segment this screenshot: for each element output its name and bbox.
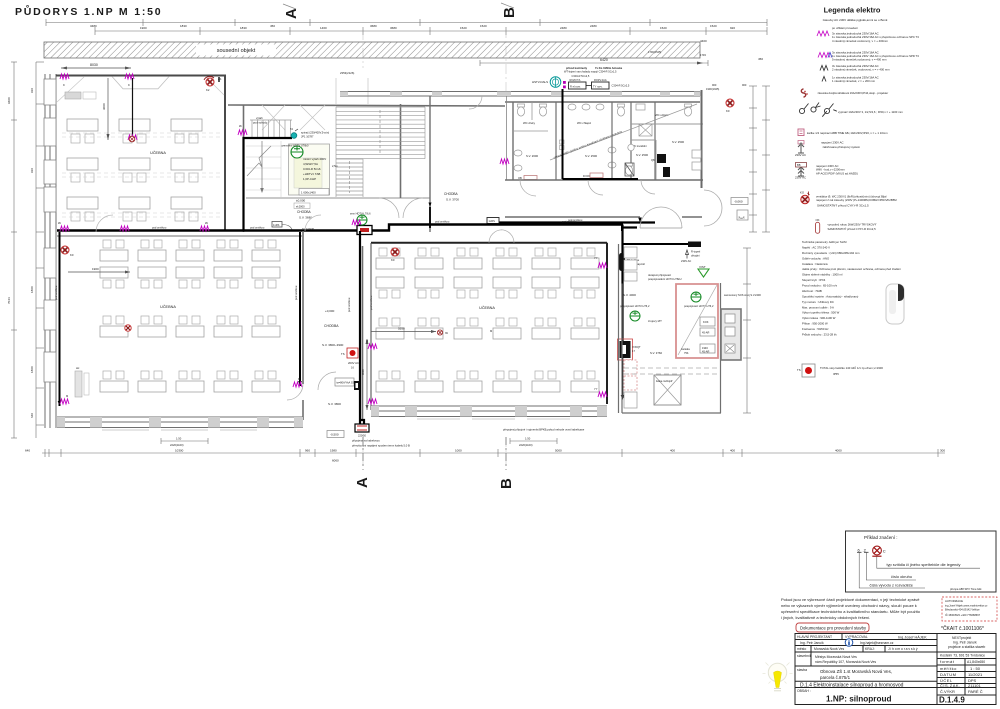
svg-text:sousední objekt: sousední objekt: [217, 48, 256, 54]
svg-text:960: 960: [305, 449, 310, 453]
svg-text:1520: 1520: [460, 26, 467, 30]
svg-text:pod omítkou: pod omítkou: [152, 226, 167, 230]
svg-text:Výkon tělesa : 900-1100 W: Výkon tělesa : 900-1100 W: [802, 316, 836, 320]
svg-text:75b: 75b: [684, 351, 689, 355]
svg-text:1 násobný rámeček, v = + 200 m: 1 násobný rámeček, v = + 200 mm: [832, 79, 876, 83]
svg-text:UČEBNA: UČEBNA: [160, 304, 176, 309]
svg-text:BB: BB: [797, 163, 801, 167]
svg-text:1830: 1830: [240, 26, 247, 30]
svg-text:1900: 1900: [140, 26, 147, 30]
svg-text:211101: 211101: [968, 683, 982, 688]
svg-text:WC chlapci: WC chlapci: [577, 121, 592, 125]
svg-text:okrajové připojovací: okrajové připojovací: [648, 273, 671, 277]
svg-text:Pokud jsou ve výkresové části: Pokud jsou ve výkresové části projektové…: [781, 597, 920, 602]
svg-text:Dokumentace pro provedení sta: Dokumentace pro provedení stavby: [800, 626, 867, 631]
svg-text:ROZV.2AA: ROZV.2AA: [594, 78, 607, 82]
svg-text:A1,840x650: A1,840x650: [967, 660, 985, 664]
svg-text:Technické parametry JetDryer S: Technické parametry JetDryer SLIM: [802, 240, 847, 244]
svg-text:CHODBA: CHODBA: [297, 210, 312, 214]
svg-text:1460: 1460: [320, 26, 327, 30]
svg-text:pod schody: pod schody: [253, 121, 268, 125]
svg-text:R el.rozv.: R el.rozv.: [570, 84, 581, 88]
svg-text:1xRS: 1xRS: [273, 223, 280, 227]
svg-text:+HDTV-I TAB: +HDTV-I TAB: [303, 172, 320, 176]
svg-text:stavebník: stavebník: [797, 654, 812, 658]
svg-text:VIST: VIST: [699, 265, 706, 269]
svg-text:5550: 5550: [398, 327, 405, 331]
svg-text:Ing. Petr Januík: Ing. Petr Januík: [953, 641, 977, 645]
svg-text:Příklad značení :: Příklad značení :: [864, 535, 898, 540]
svg-text:výtah: výtah: [256, 116, 263, 120]
svg-text:1000: 1000: [455, 449, 462, 453]
svg-text:K0: K0: [726, 109, 730, 113]
svg-text:910: 910: [30, 168, 34, 173]
svg-text:45-AR: 45-AR: [702, 350, 709, 354]
svg-text:4400: 4400: [700, 39, 707, 43]
svg-text:parcela č.875/1: parcela č.875/1: [820, 675, 851, 680]
svg-text:zásuvka dvojitá sklolková 16A: zásuvka dvojitá sklolková 16A/230V,IP44,…: [818, 91, 889, 95]
svg-text:Městys Moravská Nová Ves: Městys Moravská Nová Ves: [815, 655, 857, 659]
svg-text:450: 450: [758, 57, 763, 61]
svg-text:220/50: 220/50: [358, 434, 366, 438]
svg-text:Objem sběrné nádržky : 1000 ml: Objem sběrné nádržky : 1000 ml: [802, 273, 843, 277]
svg-text:910: 910: [30, 88, 34, 93]
svg-text:Výkon topného tělesa : 500 W: Výkon topného tělesa : 500 W: [802, 311, 840, 315]
svg-text:S.V. 3800~3900: S.V. 3800~3900: [322, 343, 344, 347]
svg-text:1.NP: silnoproud: 1.NP: silnoproud: [826, 695, 892, 704]
svg-text:6060: 6060: [332, 459, 339, 463]
svg-text:DATUM: DATUM: [940, 672, 956, 677]
svg-text:4 násobný rámeček vodorovný, v: 4 násobný rámeček vodorovný, v = + 400mm: [832, 39, 889, 43]
svg-text:920: 920: [730, 26, 735, 30]
svg-text:7x 2m 1960m Antuska: 7x 2m 1960m Antuska: [595, 66, 623, 70]
svg-text:nebo ve výkazech výměr výjimeč: nebo ve výkazech výměr výjimečně uvedeny…: [781, 603, 917, 608]
svg-text:projekce a statika staveb: projekce a statika staveb: [948, 645, 985, 649]
svg-text:Dn 100/36: Dn 100/36: [302, 227, 315, 231]
svg-text:napojení č.ísk zásuvky (230V ): napojení č.ísk zásuvky (230V )P+1400MM,K…: [816, 198, 897, 202]
svg-text:Moravská Nová Ves: Moravská Nová Ves: [814, 647, 844, 651]
svg-text:Q8: Q8: [651, 158, 655, 162]
svg-text:Odběr vzduchu : ANO: Odběr vzduchu : ANO: [802, 256, 830, 260]
svg-text:formát: formát: [940, 659, 955, 664]
svg-text:DI DK: DI DK: [583, 174, 590, 178]
svg-text:Hlučnost : 70dB: Hlučnost : 70dB: [802, 289, 822, 293]
svg-text:přívod kontinuity: přívod kontinuity: [566, 66, 588, 70]
svg-text:el,0000: el,0000: [296, 205, 305, 209]
svg-text:M: M: [366, 339, 368, 343]
svg-text:C304-R 5Cx6: C304-R 5Cx6: [303, 167, 321, 171]
svg-text:Ing. Petr Januík: Ing. Petr Januík: [800, 641, 824, 645]
svg-text:TY rozv.: TY rozv.: [593, 84, 603, 88]
svg-text:1520: 1520: [710, 24, 717, 28]
svg-text:Instalace : Nastěnná: Instalace : Nastěnná: [802, 262, 828, 266]
svg-text:1800: 1800: [30, 286, 34, 293]
svg-text:B: B: [501, 7, 518, 18]
svg-text:měřítko: měřítko: [940, 666, 957, 671]
svg-text:Max. provozní odběr : 9 A: Max. provozní odběr : 9 A: [802, 305, 834, 309]
svg-text:TS: TS: [797, 368, 801, 372]
svg-text:230V AC: 230V AC: [795, 153, 806, 157]
svg-text:230V AC: 230V AC: [795, 176, 806, 180]
svg-text:poepojovací HO7V-U76,2: poepojovací HO7V-U76,2: [684, 304, 714, 308]
svg-text:1700(1545): 1700(1545): [648, 50, 661, 54]
svg-text:nám.Republiky 107, Moravská No: nám.Republiky 107, Moravská Nová Ves: [815, 660, 876, 664]
svg-text:K2: K2: [206, 88, 210, 92]
svg-text:10300: 10300: [175, 449, 184, 453]
svg-text:5-násobný rámeček,vodorovný,: 5-násobný rámeček,vodorovný, v = 400 mm: [832, 58, 887, 62]
svg-text:SAMOSTATNÝ přívod CYKY-R 3Cx1: SAMOSTATNÝ přívod CYKY-R 3Cx1,5: [817, 203, 869, 207]
svg-text:200V AC: 200V AC: [348, 361, 359, 365]
svg-text:pod omítkou: pod omítkou: [435, 220, 450, 224]
svg-text:4,5kW/7,5A: 4,5kW/7,5A: [303, 162, 318, 166]
svg-text:*ČKAIT č.1001106*: *ČKAIT č.1001106*: [941, 625, 984, 632]
svg-text:1xRS: 1xRS: [489, 219, 496, 223]
svg-text:pod omítkou: pod omítkou: [562, 220, 577, 224]
svg-text:Spouštěcí systém : Automatický: Spouštěcí systém : Automatický - střadlo…: [802, 294, 859, 298]
svg-text:Ing.hajek@seznam.cz: Ing.hajek@seznam.cz: [860, 641, 894, 645]
svg-text:230V AC: 230V AC: [681, 259, 691, 263]
svg-text:vysoušeč rukou 2kW/230V TRYSKO: vysoušeč rukou 2kW/230V TRYSKOVÝ: [828, 222, 877, 226]
svg-text:WT-bojení sam.řadady napojí C3: WT-bojení sam.řadady napojí C304-R 5Cx1,…: [564, 70, 617, 74]
svg-text:přepojený přípojné i vyjmenlst: přepojený přípojné i vyjmenlst BPKB,poku…: [503, 428, 585, 432]
svg-text:IP55: IP55: [833, 372, 839, 376]
svg-text:3680: 3680: [390, 26, 397, 30]
svg-text:1 600x1400: 1 600x1400: [301, 191, 316, 195]
svg-text:Napětí : AC 370-240 V: Napětí : AC 370-240 V: [802, 245, 830, 249]
svg-text:A: A: [354, 477, 371, 488]
svg-text:Rozměry vysoušeče : (v/š/t) 68: Rozměry vysoušeče : (v/š/t) 686x295x194 …: [802, 251, 860, 255]
svg-text:PARÉ Č: PARÉ Č: [968, 689, 983, 694]
svg-text:zem HDTV-L7/6,6: zem HDTV-L7/6,6: [350, 212, 371, 216]
svg-text:450: 450: [270, 24, 275, 28]
svg-text:tę=80A/YkA SS: tę=80A/YkA SS: [337, 381, 355, 385]
svg-text:900: 900: [742, 83, 747, 87]
svg-text:1:50: 1:50: [176, 437, 182, 441]
svg-text:připojena na kabelovou: připojena na kabelovou: [352, 439, 380, 443]
svg-text:2220(1100): 2220(1100): [519, 443, 533, 447]
svg-text:i jiných, kvalitativně a techn: i jiných, kvalitativně a technicky obdob…: [781, 615, 870, 620]
svg-text:přerušovaní napájení spodem te: přerušovaní napájení spodem temn kabely …: [352, 444, 410, 448]
svg-text:45-AR: 45-AR: [702, 331, 709, 335]
svg-text:400: 400: [730, 449, 735, 453]
svg-text:KRAJ:: KRAJ:: [865, 647, 875, 651]
svg-text:CHODBA: CHODBA: [444, 192, 459, 196]
svg-text:Jihomoravský: Jihomoravský: [888, 647, 918, 651]
svg-text:2353(2126): 2353(2126): [340, 71, 354, 75]
svg-text:S.V. 2500: S.V. 2500: [672, 140, 684, 144]
svg-text:šatna rodzojdř: šatna rodzojdř: [656, 379, 673, 383]
svg-text:WC učitelé: WC učitelé: [655, 113, 669, 117]
svg-text:upřesnění specifikace technick: upřesnění specifikace technického a kval…: [781, 609, 921, 614]
svg-text:M: M: [298, 377, 300, 381]
svg-text:olivojini: olivojini: [691, 254, 700, 258]
svg-text:TS: TS: [341, 352, 345, 356]
svg-text:2 násobný rámeček, vodorovný,: 2 násobný rámeček, vodorovný, v = + 400 …: [832, 68, 890, 72]
svg-text:300: 300: [940, 449, 945, 453]
svg-text:Stupeň krytí : IPX4: Stupeň krytí : IPX4: [802, 278, 826, 282]
svg-text:samonosný SOS otvoj S.V.2400: samonosný SOS otvoj S.V.2400: [724, 293, 761, 297]
svg-text:3000: 3000: [361, 369, 365, 375]
svg-text:5000: 5000: [555, 449, 562, 453]
svg-text:Průtok vzduchu : 23,5-28 l/s: Průtok vzduchu : 23,5-28 l/s: [802, 333, 837, 337]
svg-text:+0,000: +0,000: [325, 309, 335, 313]
svg-text:SAMOSTATNÝ přívod CYKY-R 3Cx2: SAMOSTATNÝ přívod CYKY-R 3Cx2,5: [828, 227, 877, 231]
svg-text:YY: YY: [594, 387, 598, 391]
svg-text:C: C: [883, 549, 886, 554]
svg-text:typ svítidla či jiného speťteb: typ svítidla či jiného speťtebiče dle le…: [887, 562, 961, 567]
svg-text:C304-R 5Cx2,5: C304-R 5Cx2,5: [612, 84, 630, 88]
svg-text:poepojovací HO7V-U76,2: poepojovací HO7V-U76,2: [620, 304, 650, 308]
svg-text:WC dívky: WC dívky: [523, 121, 536, 125]
svg-text:1520: 1520: [480, 24, 487, 28]
svg-text:Proud vzduchu : 65-100 m/s: Proud vzduchu : 65-100 m/s: [802, 284, 838, 288]
svg-text:S.V. 2600: S.V. 2600: [526, 154, 538, 158]
svg-text:Jakité prvky : Ochrana proti p: Jakité prvky : Ochrana proti plisním, na…: [802, 267, 901, 271]
svg-text:Autieka: Autieka: [681, 347, 690, 351]
svg-text:1:50: 1:50: [525, 437, 531, 441]
svg-text:1 : 50: 1 : 50: [970, 666, 981, 671]
svg-text:S.V. 4000: S.V. 4000: [623, 293, 636, 297]
svg-text:1703: 1703: [700, 53, 706, 57]
svg-text:Kostelní 73, 691 53 Tvrdonice: Kostelní 73, 691 53 Tvrdonice: [940, 654, 985, 658]
svg-text:-0,060: -0,060: [734, 200, 743, 204]
svg-text:JP1 10787: JP1 10787: [301, 135, 314, 139]
svg-text:napojení 230V AC: napojení 230V AC: [821, 141, 844, 145]
svg-text:Ing.Josef HÁJEK: Ing.Josef HÁJEK: [898, 636, 927, 640]
svg-text:K0: K0: [391, 258, 395, 262]
svg-text:4000: 4000: [835, 449, 842, 453]
svg-text:AP-AC03 PDIF (VKUS ad.HAZEl): AP-AC03 PDIF (VKUS ad.HAZEl): [816, 172, 858, 176]
svg-text:NEXTprojekt: NEXTprojekt: [952, 636, 971, 640]
svg-text:OBSAH :: OBSAH :: [797, 689, 811, 693]
svg-text:vypínač 10A/230V 3, 1/2,5/2,6: vypínač 10A/230V 3, 1/2,5/2,6 ; IP20,v =…: [838, 110, 903, 114]
svg-text:R-toperl: R-toperl: [691, 250, 701, 254]
svg-text:1900(1945): 1900(1945): [706, 87, 719, 91]
svg-text:PŮDORYS 1.NP M 1:50: PŮDORYS 1.NP M 1:50: [15, 4, 162, 18]
svg-text:640: 640: [25, 449, 30, 453]
svg-text:6420: 6420: [600, 58, 608, 62]
svg-text:čísla vývodu z rozvaděče: čísla vývodu z rozvaděče: [870, 582, 913, 587]
svg-text:číslo okruhu: číslo okruhu: [891, 574, 912, 579]
svg-text:zabičované-přístupový systém: zabičované-přístupový systém: [823, 145, 861, 149]
svg-text:S.V. 2500: S.V. 2500: [585, 154, 597, 158]
svg-text:1946: 1946: [702, 346, 708, 350]
svg-text:M: M: [66, 394, 68, 398]
svg-text:TA: TA: [290, 127, 293, 131]
svg-text:přenpa A88 SPV Time běk: přenpa A88 SPV Time běk: [950, 587, 982, 591]
svg-text:1520: 1520: [660, 26, 667, 30]
svg-text:Obnova ZŠ 1.st Moravská Nová V: Obnova ZŠ 1.st Moravská Nová Ves,: [820, 669, 892, 674]
svg-text:YY: YY: [594, 256, 598, 260]
svg-text:640: 640: [30, 413, 34, 418]
svg-text:-0,500: -0,500: [330, 433, 339, 437]
svg-text:spínač (230/400V,5-zón): spínač (230/400V,5-zón): [301, 131, 329, 135]
svg-text:KOK: KOK: [703, 320, 709, 324]
svg-text:poepojovadení HO7V-U76kU: poepojovadení HO7V-U76kU: [648, 277, 682, 281]
svg-text:A: A: [283, 8, 300, 19]
svg-text:ROZV.TA: ROZV.TA: [570, 78, 581, 82]
svg-text:město: město: [797, 647, 806, 651]
svg-text:1900: 1900: [92, 267, 99, 271]
svg-text:D.1.4 Elektroinstalace silnopr: D.1.4 Elektroinstalace silnoproud a hrom…: [800, 683, 904, 689]
svg-text:1980: 1980: [330, 449, 337, 453]
svg-text:3480: 3480: [90, 24, 97, 28]
svg-text:400: 400: [670, 449, 675, 453]
svg-text:karlke 1/2 napínací ABB TIME b: karlke 1/2 napínací ABB TIME b8c,10A/230…: [807, 131, 888, 135]
svg-text:ing.Josef Hájek,www.znalmivekt: ing.Josef Hájek,www.znalmivektor.cz: [945, 604, 988, 608]
svg-text:S.V. 3760: S.V. 3760: [650, 351, 662, 355]
svg-text:CHODBA: CHODBA: [324, 324, 339, 328]
svg-text:±0,000: ±0,000: [296, 199, 305, 203]
svg-text:1830: 1830: [180, 24, 187, 28]
svg-text:B: B: [498, 478, 515, 489]
svg-text:pod omítkou: pod omítkou: [250, 226, 265, 230]
svg-text:900: 900: [712, 83, 717, 87]
svg-text:HLAVNÍ PROJEKTANT: HLAVNÍ PROJEKTANT: [797, 635, 832, 639]
svg-text:1800: 1800: [30, 366, 34, 373]
svg-text:2480: 2480: [590, 24, 597, 28]
svg-text:uzemnění HDTV U76k0: uzemnění HDTV U76k0: [281, 144, 309, 148]
svg-text:ČÍS.ZAK.: ČÍS.ZAK.: [940, 683, 961, 688]
svg-text:Příkon : 950-2000 W: Příkon : 950-2000 W: [802, 322, 828, 326]
svg-text:7044: 7044: [7, 297, 11, 304]
svg-text:S.V. 3800: S.V. 3800: [328, 402, 341, 406]
svg-text:po užíkáni provedení: po užíkáni provedení: [832, 26, 858, 30]
svg-text:skr.: skr.: [76, 367, 80, 370]
svg-text:pod omítkou: pod omítkou: [294, 285, 298, 300]
svg-text:D.1.4.9: D.1.4.9: [939, 696, 965, 705]
svg-text:místní výtah 400V: místní výtah 400V: [303, 157, 326, 161]
svg-text:stavba: stavba: [797, 668, 807, 672]
svg-text:Břeclavská 404,69142 Velšice: Břeclavská 404,69142 Velšice: [945, 608, 980, 612]
svg-text:2480: 2480: [560, 26, 567, 30]
svg-text:S.V. 2500: S.V. 2500: [636, 153, 648, 157]
svg-text:1,6P-CHP: 1,6P-CHP: [303, 177, 316, 181]
svg-text:8030: 8030: [90, 63, 98, 67]
svg-text:K0: K0: [70, 253, 74, 257]
svg-text:UČEBNA: UČEBNA: [150, 150, 166, 155]
svg-text:OK: OK: [816, 218, 820, 222]
svg-text:Č.VÝKR: Č.VÝKR: [940, 689, 955, 694]
svg-text:C304-R 5Cx2,5: C304-R 5Cx2,5: [572, 74, 590, 78]
svg-text:S.V. 3700: S.V. 3700: [446, 198, 459, 202]
svg-text:IY/DQT: IY/DQT: [632, 345, 641, 349]
svg-text:11/2021: 11/2021: [968, 672, 983, 677]
svg-text:2220(1100): 2220(1100): [170, 443, 184, 447]
svg-text:9400: 9400: [7, 97, 11, 104]
svg-text:HSTV-DALS: HSTV-DALS: [532, 80, 548, 84]
svg-text:2,5m: 2,5m: [332, 164, 338, 168]
svg-text:zásuvky AC 230V dělkké pgjivák: zásuvky AC 230V dělkké pgjivák,amni se o…: [823, 18, 888, 22]
svg-text:pod omítkou: pod omítkou: [347, 297, 351, 312]
svg-text:Frekvence : 50/60 Hz: Frekvence : 50/60 Hz: [802, 327, 829, 331]
svg-text:UČEBNA: UČEBNA: [479, 305, 495, 310]
svg-text:pod omítkou: pod omítkou: [54, 285, 58, 300]
svg-text:TOTAL stoj./světílko 140 44Č: TOTAL stoj./světílko 140 44Č 1/1 zp.ob'e…: [820, 365, 883, 370]
svg-text:AUTORIZACE: AUTORIZACE: [945, 599, 963, 603]
svg-text:zrojovy IZT: zrojovy IZT: [648, 319, 662, 323]
svg-text:Typ motoru : Uhlíkový DC: Typ motoru : Uhlíkový DC: [802, 300, 834, 304]
svg-text:3680: 3680: [370, 24, 377, 28]
svg-text:Legenda elektro: Legenda elektro: [824, 6, 881, 15]
svg-text:3000: 3000: [102, 103, 106, 110]
svg-text:M: M: [490, 329, 492, 333]
